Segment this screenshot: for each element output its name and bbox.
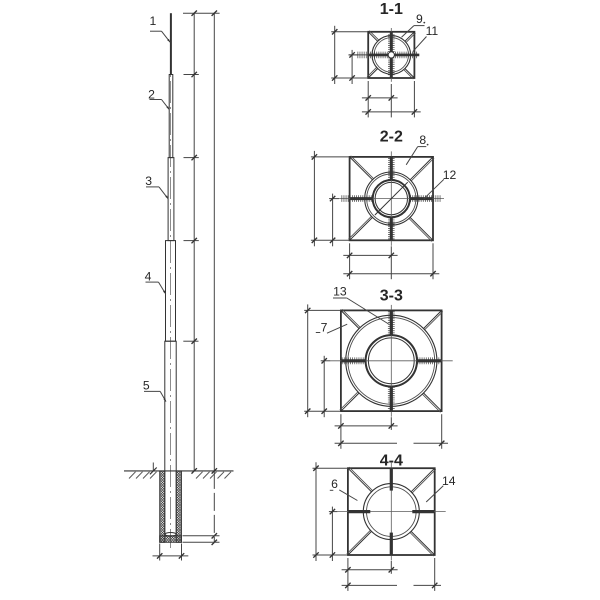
- svg-text:1: 1: [150, 14, 157, 28]
- svg-text:12: 12: [443, 168, 457, 182]
- svg-text:1-1: 1-1: [380, 1, 403, 18]
- svg-text:3-3: 3-3: [380, 288, 403, 305]
- svg-text:2-2: 2-2: [380, 128, 403, 145]
- svg-text:5: 5: [143, 379, 150, 393]
- svg-text:8: 8: [419, 133, 426, 147]
- svg-text:6: 6: [331, 477, 338, 491]
- svg-text:9: 9: [416, 12, 423, 26]
- svg-text:13: 13: [333, 284, 347, 298]
- svg-text:4: 4: [145, 270, 152, 284]
- svg-text:7: 7: [321, 321, 328, 335]
- svg-text:14: 14: [442, 474, 456, 488]
- svg-text:3: 3: [145, 174, 152, 188]
- svg-text:11: 11: [426, 24, 439, 38]
